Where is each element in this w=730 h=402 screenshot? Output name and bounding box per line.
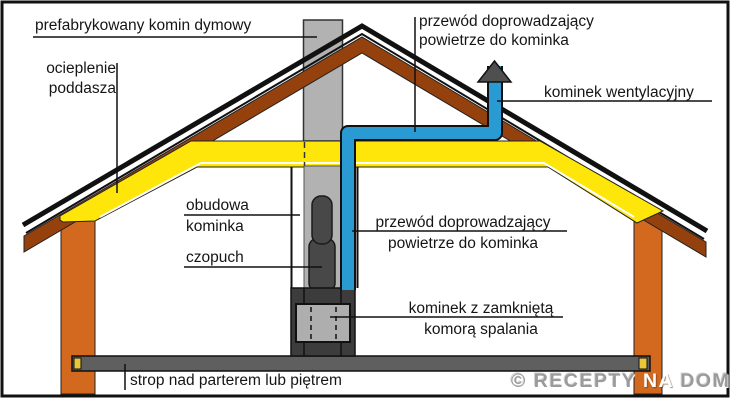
label-floor-slab: strop nad parterem lub piętrem [130,371,342,391]
combustion-chamber [296,304,350,342]
label-air-duct-top-line1: przewód doprowadzający [419,12,594,31]
label-attic-insulation-line2: poddasza [30,79,116,99]
label-flue: czopuch [186,248,244,268]
label-attic-insulation: ocieplenie poddasza [30,59,116,99]
slab-block-left [74,358,81,369]
diagram-canvas: prefabrykowany komin dymowy ocieplenie p… [0,0,730,402]
label-enclosure-line2: kominka [186,217,244,237]
label-fireplace: kominek z zamkniętą komorą spalania [396,298,566,340]
slab-block-right [639,358,647,369]
label-vent-chimney: kominek wentylacyjny [544,83,694,103]
floor-slab [72,356,650,371]
watermark-part2: NA [643,370,673,392]
label-fireplace-line1: kominek z zamkniętą [396,298,566,319]
label-air-duct-mid: przewód doprowadzający powietrze do komi… [358,212,568,254]
watermark: © RECEPTY NA DOM [511,370,730,393]
flue-pipe-upper [312,196,332,244]
label-air-duct-top: przewód doprowadzający powietrze do komi… [419,12,594,50]
label-air-duct-mid-line1: przewód doprowadzający [358,212,568,233]
watermark-part1: © RECEPTY [511,370,643,392]
label-fireplace-line2: komorą spalania [396,319,566,340]
watermark-part3: DOM [673,370,730,392]
flue-pipe-lower [309,238,335,292]
label-air-duct-top-line2: powietrze do kominka [419,31,594,50]
label-air-duct-mid-line2: powietrze do kominka [358,233,568,254]
label-prefab-chimney: prefabrykowany komin dymowy [35,16,251,36]
vent-cap-triangle [478,61,511,82]
label-enclosure-line1: obudowa [186,196,249,216]
label-attic-insulation-line1: ocieplenie [30,59,116,79]
